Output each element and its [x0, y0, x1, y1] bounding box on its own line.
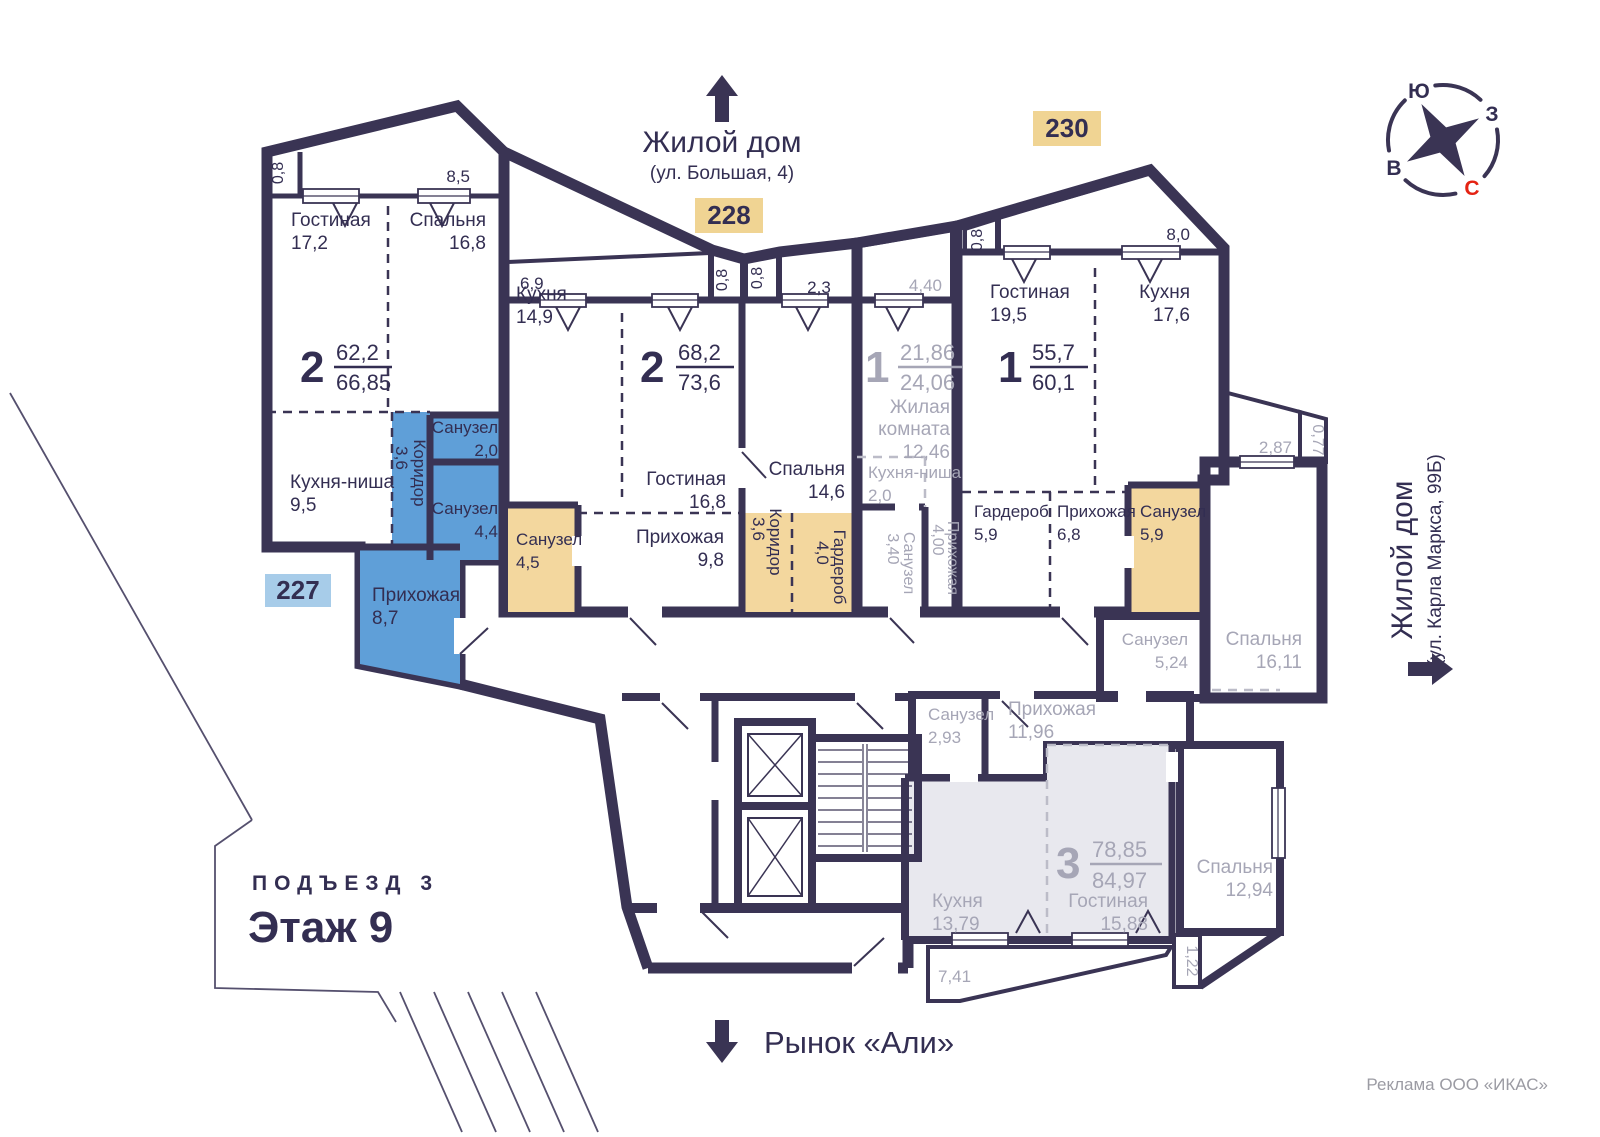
area-living: 55,7 [1032, 340, 1075, 365]
room-area: 16,8 [689, 492, 726, 513]
labels-studio: 1 21,86 24,06 Жилая комната 12,46 Кухня-… [865, 276, 962, 595]
balcony-area: 0,8 [749, 267, 766, 289]
balcony-door-swing [1012, 259, 1162, 282]
room-area: 16,11 [1256, 652, 1302, 673]
compass-north: С [1464, 177, 1479, 200]
door-leaf-228 [630, 618, 656, 645]
advertising-credit: Реклама ООО «ИКАС» [1366, 1075, 1548, 1094]
room-label: Спальня [1197, 857, 1273, 878]
room-label: Кухня [932, 891, 983, 912]
apartment-228 [504, 152, 857, 645]
balcony-area: 7,41 [938, 967, 971, 986]
room-label: Спальня [769, 459, 845, 480]
balcony-area: 2,3 [807, 278, 831, 297]
arrow-down-icon [706, 1020, 738, 1063]
rooms-count: 2 [640, 343, 664, 392]
room-area: 4,0 [813, 541, 832, 565]
balcony-area: 8,5 [446, 167, 470, 186]
room-label: Коридор [410, 439, 429, 506]
room-area: 5,24 [1155, 653, 1188, 672]
compass: Ю З В С [1386, 80, 1498, 200]
room-area: 4,5 [516, 553, 540, 572]
room-area: 2,0 [868, 486, 892, 505]
room-label: Санузел [516, 530, 582, 549]
room-label: Санузел [432, 499, 498, 518]
room-area: 8,7 [372, 608, 398, 629]
area-total: 84,97 [1092, 868, 1147, 893]
room-label: Санузел [928, 705, 994, 724]
area-living: 68,2 [678, 340, 721, 365]
room-area: 12,46 [902, 442, 950, 463]
room-label: Гостиная [646, 469, 726, 490]
area-total: 60,1 [1032, 370, 1075, 395]
balcony-door-swing [556, 307, 820, 330]
area-living: 78,85 [1092, 837, 1147, 862]
landmark-title: Жилой дом [1386, 481, 1419, 640]
landmark-title: Жилой дом [643, 126, 802, 159]
entrance-door-leaf [854, 938, 884, 966]
room-label: Кухня-ниша [868, 463, 962, 482]
door-gap-studio-entrance [888, 606, 920, 618]
room-label: Кухня [1139, 282, 1190, 303]
room-label: Прихожая [1008, 699, 1096, 720]
compass-east: В [1386, 157, 1401, 180]
room-area: 14,9 [516, 307, 553, 328]
rooms-count: 1 [998, 343, 1022, 392]
landmark-subtitle: (ул. Большая, 4) [650, 163, 794, 184]
room-area: 4,4 [474, 522, 498, 541]
room-label: Прихожая [1057, 502, 1136, 521]
landmark-bottom: Рынок «Али» [706, 1020, 954, 1063]
room-area: 16,8 [449, 233, 486, 254]
area-total: 24,06 [900, 370, 955, 395]
room-area: 12,94 [1225, 880, 1273, 901]
room-label: Прихожая [944, 521, 961, 595]
room-area: 3,6 [749, 517, 768, 541]
balcony-area: 6,9 [520, 274, 544, 293]
floor-label: Этаж 9 [248, 903, 393, 952]
room-label: Гостиная [291, 210, 371, 231]
area-total: 73,6 [678, 370, 721, 395]
room-label: Гостиная [990, 282, 1070, 303]
landmark-top: Жилой дом (ул. Большая, 4) [643, 75, 802, 184]
room-label: комната [878, 419, 950, 440]
room-label: Санузел [1140, 502, 1206, 521]
apartment-number-227: 227 [276, 575, 319, 605]
room-label: Санузел [432, 418, 498, 437]
balcony-area: 4,40 [909, 276, 942, 295]
room-label: Спальня [1226, 629, 1302, 650]
labels-230: Гостиная 19,5 Кухня 17,6 1 55,7 60,1 Гар… [969, 111, 1206, 544]
compass-west: З [1485, 103, 1498, 126]
room-label: Гостиная [1068, 891, 1148, 912]
balcony-area: 2,87 [1259, 438, 1292, 457]
room-area: 15,88 [1100, 914, 1148, 935]
balcony-area: 8,0 [1166, 225, 1190, 244]
room-area: 3,6 [392, 446, 411, 470]
door-gap-230-entrance [1060, 606, 1094, 618]
room-area: 9,5 [290, 495, 316, 516]
balcony-area: 0,8 [714, 269, 731, 291]
balcony-area: 0,8 [270, 162, 287, 184]
entrance-label: ПОДЪЕЗД 3 [252, 872, 439, 895]
room-area: 3,40 [884, 533, 901, 564]
area-living: 62,2 [336, 340, 379, 365]
room-area: 11,96 [1008, 722, 1054, 743]
apartment-number-230: 230 [1045, 113, 1088, 143]
floor-plan: Гостиная 17,2 Спальня 16,8 2 62,2 66,85 … [0, 0, 1600, 1137]
landmark-subtitle: (ул. Карла Маркса, 99Б) [1425, 454, 1446, 666]
floor-plan-page: Гостиная 17,2 Спальня 16,8 2 62,2 66,85 … [0, 0, 1600, 1137]
door-gap-228-entrance [628, 606, 662, 618]
room-area: 17,2 [291, 233, 328, 254]
room-area: 19,5 [990, 305, 1027, 326]
room-area: 6,8 [1057, 525, 1081, 544]
room-label: Санузел [1122, 630, 1188, 649]
room-area: 14,6 [808, 482, 845, 503]
room-label: Гардероб [974, 502, 1049, 521]
area-total: 66,85 [336, 370, 391, 395]
balcony-area: 0,8 [969, 229, 986, 251]
room-area: 4,00 [929, 524, 946, 555]
room-area: 2,0 [474, 441, 498, 460]
room-area: 13,79 [932, 914, 980, 935]
area-living: 21,86 [900, 340, 955, 365]
room-area: 17,6 [1153, 305, 1190, 326]
room-area: 9,8 [698, 550, 724, 571]
balcony-area: 1,22 [1183, 945, 1200, 976]
room-label: Прихожая [372, 585, 460, 606]
rooms-count: 1 [865, 343, 889, 392]
arrow-up-icon [706, 75, 738, 122]
rooms-count: 2 [300, 343, 324, 392]
room-label: Санузел [900, 532, 917, 594]
room-label: Кухня-ниша [290, 472, 395, 493]
compass-south: Ю [1408, 80, 1430, 103]
room-area: 5,9 [1140, 525, 1164, 544]
room-label: Прихожая [636, 527, 724, 548]
room-label: Спальня [410, 210, 486, 231]
room-area: 5,9 [974, 525, 998, 544]
landmark-right: Жилой дом (ул. Карла Маркса, 99Б) [1386, 454, 1453, 685]
compass-rose-icon [1407, 104, 1479, 176]
balcony-area: 0,77 [1309, 424, 1326, 455]
apartment-number-228: 228 [707, 200, 750, 230]
elevator-shaft [738, 722, 812, 908]
room-area: 2,93 [928, 728, 961, 747]
rooms-count: 3 [1056, 839, 1080, 888]
floor-info: ПОДЪЕЗД 3 Этаж 9 [248, 872, 439, 952]
room-label: Жилая [890, 397, 950, 418]
door-gap-227-entrance [454, 618, 466, 654]
landmark-title: Рынок «Али» [764, 1025, 954, 1060]
